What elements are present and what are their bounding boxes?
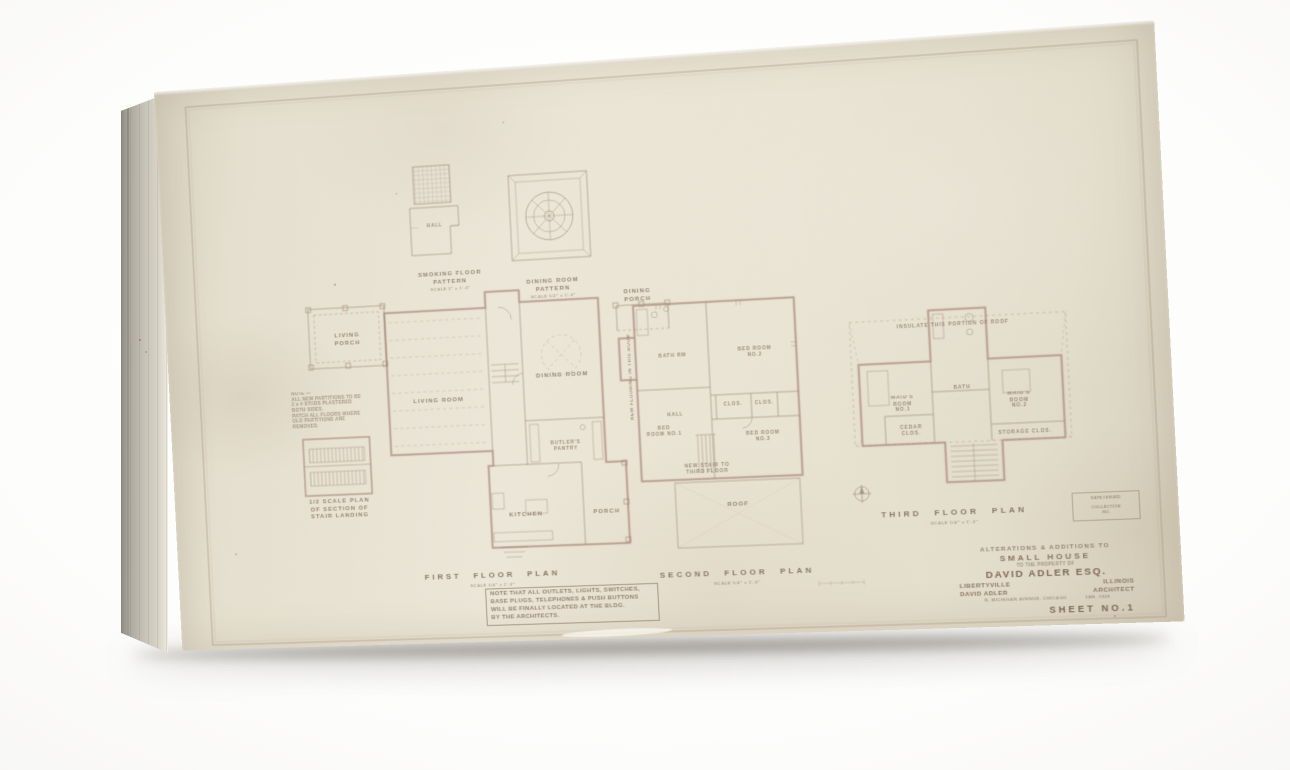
canvas-print: HALL SMOKING FLOOR PATTERN SCALE 3" = 1'… xyxy=(134,32,1167,662)
paper-speck xyxy=(139,339,141,341)
smoking-floor-pattern-plan xyxy=(408,164,461,255)
paper-speck xyxy=(235,553,237,555)
paper-speck xyxy=(334,284,336,286)
place-left: LIBERTYVILLE xyxy=(960,582,1011,590)
maids-room-2-label: MAID'S ROOM NO.2 xyxy=(1007,391,1031,411)
architect-title: ARCHITECT xyxy=(1093,587,1135,595)
hall-label: HALL xyxy=(427,223,443,230)
maids-room-1-label: MAID'S ROOM NO.1 xyxy=(891,395,915,414)
bed-room-2-label: BED ROOM NO.2 xyxy=(738,345,772,359)
kitchen-label: KITCHEN xyxy=(509,511,543,520)
stair-landing-detail xyxy=(303,437,372,496)
dining-ceiling-title: DINING ROOM PATTERN xyxy=(526,277,579,295)
stair-landing-title: 1/2 SCALE PLAN OF SECTION OF STAIR LANDI… xyxy=(309,497,371,521)
drawing-date: JAN. 1926 xyxy=(1085,594,1111,599)
second-floor-plan xyxy=(617,297,806,550)
third-floor-plan xyxy=(849,303,1074,486)
closet-label: CLOS. xyxy=(755,400,775,407)
hall-2-label: HALL xyxy=(667,412,684,419)
title-block: ALTERATIONS & ADDITIONS TO SMALL HOUSE T… xyxy=(945,542,1148,618)
living-porch-label: LIVING PORCH xyxy=(334,332,361,348)
cedar-closet-label: CEDAR CLOS. xyxy=(900,425,923,438)
canvas-fold-crease xyxy=(127,93,129,653)
dining-porch-label: DINING PORCH xyxy=(623,288,651,304)
roof-label: ROOF xyxy=(727,501,749,509)
dining-room-ceiling-plan xyxy=(508,171,591,261)
butlers-pantry-label: BUTLER'S PANTRY xyxy=(550,440,581,453)
library-stamp: DATE ISSUED COLLECTION NO. xyxy=(1071,490,1140,522)
paper-speck xyxy=(395,193,397,195)
electrical-note-box: NOTE THAT ALL OUTLETS, LIGHTS, SWITCHES,… xyxy=(485,583,660,626)
bed-room-1-label: BED ROOM NO.1 xyxy=(646,425,682,439)
general-note: NOTE — ALL NEW PARTITIONS TO BE 2 x 4 ST… xyxy=(291,389,363,431)
stamp-line: DATE ISSUED xyxy=(1086,494,1124,501)
porch-label: PORCH xyxy=(593,508,620,517)
compass-icon xyxy=(852,484,871,503)
place-right: ILLINOIS xyxy=(1103,578,1135,585)
paper-speck xyxy=(1114,615,1116,617)
drawing-sheet: HALL SMOKING FLOOR PATTERN SCALE 3" = 1'… xyxy=(154,20,1185,651)
graphic-scale xyxy=(819,580,864,587)
bath-3-label: BATH xyxy=(953,385,970,392)
bed-room-3-label: BED ROOM NO.3 xyxy=(746,430,780,444)
closet-label: CLOS. xyxy=(723,402,743,409)
stamp-line: COLLECTION NO. xyxy=(1087,504,1126,516)
stair-note-label: NEW STAIR TO THIRD FLOOR xyxy=(684,462,730,476)
scene: HALL SMOKING FLOOR PATTERN SCALE 3" = 1'… xyxy=(0,0,1290,770)
first-floor-plan xyxy=(383,285,631,561)
